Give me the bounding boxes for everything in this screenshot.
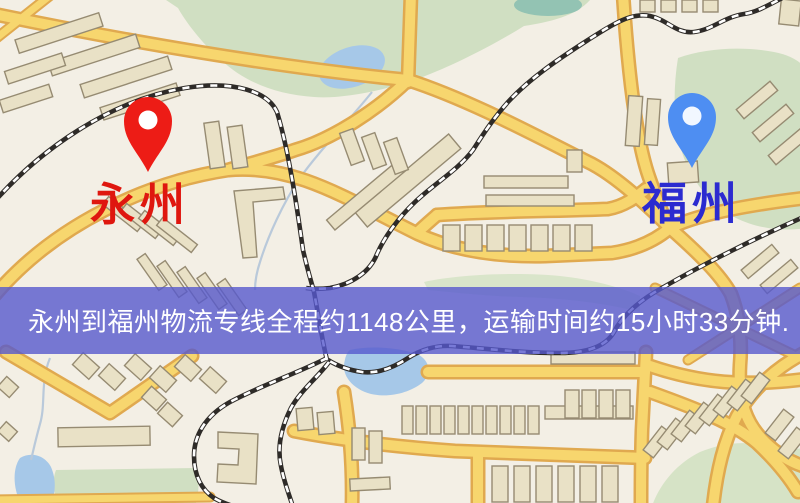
building (492, 466, 508, 502)
building (486, 406, 497, 434)
building (682, 0, 697, 12)
building (602, 466, 618, 502)
building (472, 406, 483, 434)
building (416, 406, 427, 434)
building (484, 176, 568, 188)
building (369, 431, 382, 463)
building (599, 390, 613, 418)
building (575, 225, 592, 251)
building (565, 390, 579, 418)
building (625, 96, 642, 147)
building (430, 406, 441, 434)
building (444, 406, 455, 434)
building (296, 407, 314, 430)
building (514, 406, 525, 434)
building (558, 466, 574, 502)
building (58, 426, 150, 447)
building (443, 225, 460, 251)
destination-pin-icon[interactable] (662, 88, 722, 172)
building (640, 0, 655, 12)
building (500, 406, 511, 434)
building (350, 477, 391, 491)
map-image: 永州到福州物流专线全程约1148公里，运输时间约15小时33分钟. 永州 福州 (0, 0, 800, 503)
building (536, 466, 552, 502)
map-canvas (0, 0, 800, 503)
building (553, 225, 570, 251)
origin-label: 永州 (90, 182, 190, 227)
origin-pin-icon[interactable] (118, 92, 178, 176)
building (317, 411, 335, 434)
building (779, 0, 800, 26)
building (567, 150, 582, 172)
building (644, 99, 660, 146)
building (616, 390, 630, 418)
route-info-text: 永州到福州物流专线全程约1148公里，运输时间约15小时33分钟. (28, 302, 789, 339)
destination-label: 福州 (642, 181, 742, 226)
route-info-banner: 永州到福州物流专线全程约1148公里，运输时间约15小时33分钟. (0, 287, 800, 354)
building (402, 406, 413, 434)
building (514, 466, 530, 502)
building (528, 406, 539, 434)
building (509, 225, 526, 251)
building (531, 225, 548, 251)
building (580, 466, 596, 502)
building (487, 225, 504, 251)
building (458, 406, 469, 434)
building (352, 428, 365, 460)
building (465, 225, 482, 251)
building (486, 195, 574, 206)
building (582, 390, 596, 418)
building (661, 0, 676, 12)
building (703, 0, 718, 12)
